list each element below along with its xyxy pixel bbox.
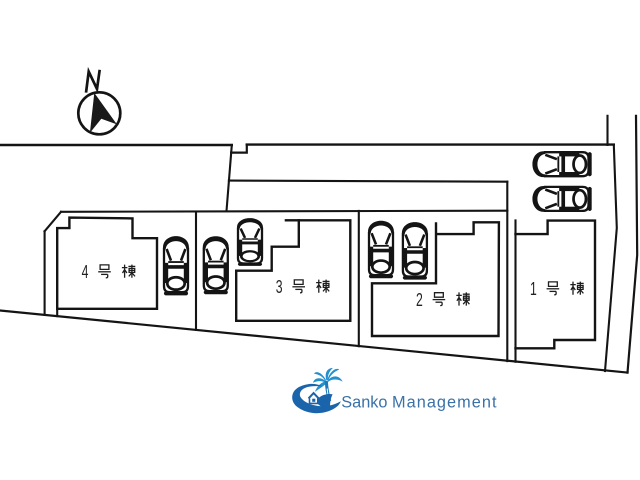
svg-text:2: 2	[416, 289, 423, 310]
svg-text:1: 1	[530, 278, 537, 299]
svg-text:Management: Management	[392, 394, 498, 412]
svg-text:3: 3	[276, 276, 283, 297]
svg-text:4: 4	[82, 261, 89, 282]
svg-text:Sanko: Sanko	[341, 394, 387, 412]
